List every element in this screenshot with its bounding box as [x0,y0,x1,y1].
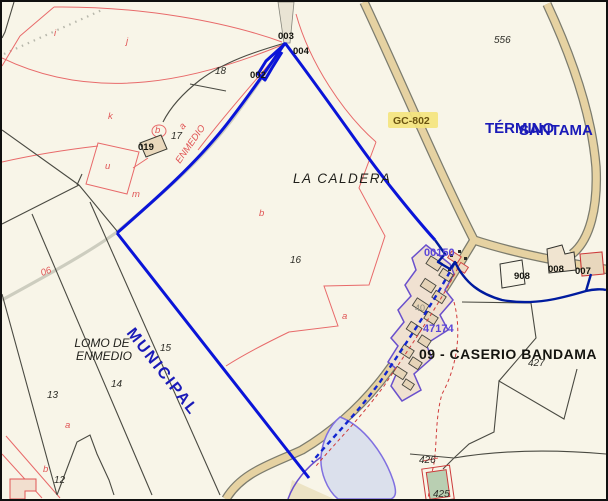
code-007: 007 [575,266,591,277]
label-gc802: GC-802 [393,115,430,127]
code-004: 004 [293,46,310,57]
map-canvas[interactable]: i j k u m b a b a a b 18 17 16 15 14 13 … [2,2,606,499]
letter-a-16: a [342,311,347,322]
code-908: 908 [514,271,530,282]
parcel-425: 425 [433,489,450,499]
label-caserio-bandama: 09 - CASERIO BANDAMA [419,346,597,362]
code-003: 003 [278,31,294,42]
cadastral-map-window: i j k u m b a b a a b 18 17 16 15 14 13 … [0,0,608,501]
parcel-426: 426 [419,455,436,466]
parcel-13: 13 [47,390,59,401]
letter-b-12: b [43,464,48,475]
parcel-15: 15 [160,343,172,354]
parcel-17: 17 [171,131,183,142]
code-008: 008 [548,264,564,275]
label-santa: SANTAMA [519,122,593,139]
parcel-16: 16 [290,255,302,266]
label-la-caldera: LA CALDERA [293,171,392,186]
parcel-18: 18 [215,66,227,77]
letter-m: m [132,189,140,200]
letter-a-13: a [65,420,70,431]
letter-u: u [105,161,111,172]
label-lomo-line1: LOMO DE [74,336,130,350]
code-47174: 47174 [423,323,454,335]
letter-b-16: b [259,208,264,219]
letter-b-17: b [155,125,160,136]
code-40: 40 [415,303,425,313]
parcel-556: 556 [494,35,511,46]
parcel-14: 14 [111,379,123,390]
code-019: 019 [138,142,154,153]
label-lomo-line2: ENMEDIO [76,349,132,363]
code-00150: 00150 [424,247,455,259]
parcel-12: 12 [54,475,66,486]
code-002: 002 [250,70,266,81]
